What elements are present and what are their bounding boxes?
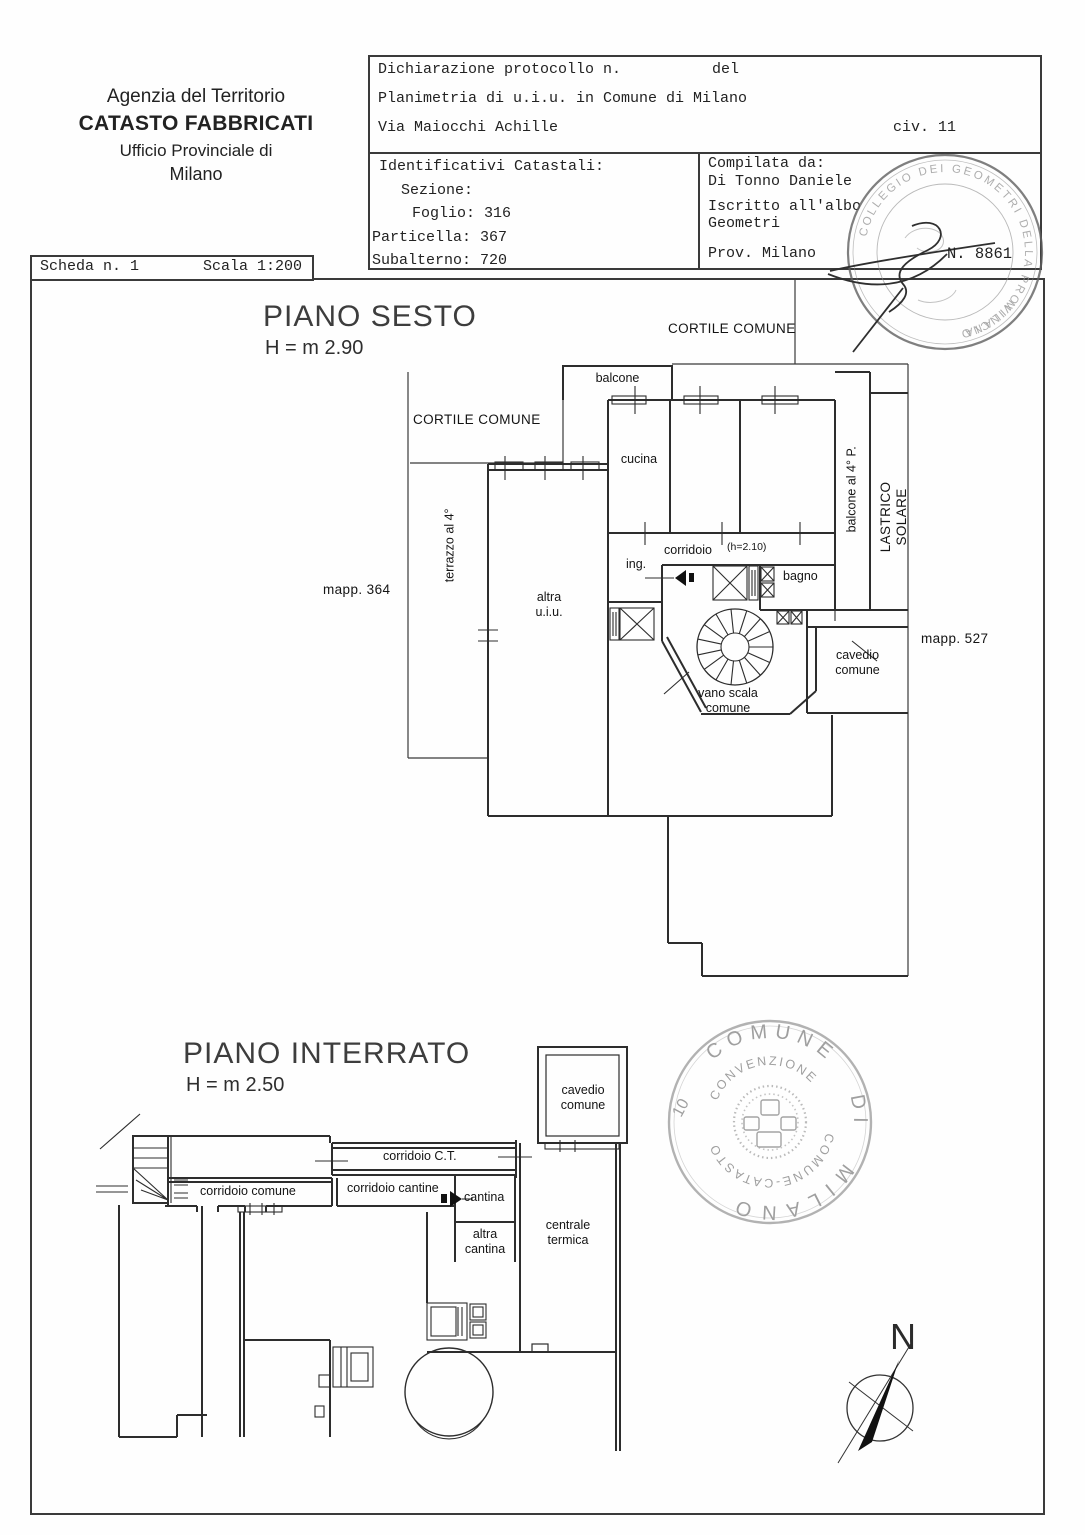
room-label-cavedio-interrato: cavedio comune — [548, 1083, 618, 1113]
scala-value: Scala 1:200 — [203, 258, 302, 275]
map-parcel-364: mapp. 364 — [323, 582, 390, 598]
room-label-corridoio-height: (h=2.10) — [727, 541, 766, 553]
room-label-cantina: cantina — [464, 1190, 504, 1205]
room-label-corridoio-comune: corridoio comune — [200, 1184, 296, 1199]
svg-text:DI: DI — [846, 1093, 872, 1130]
svg-text:MILANO: MILANO — [724, 1160, 857, 1224]
interrato-entry-arrow — [441, 1191, 462, 1207]
comune-stamp-inner-top: CONVENZIONE — [707, 1054, 820, 1102]
room-label-lastrico-solare: LASTRICO SOLARE — [878, 452, 910, 582]
map-parcel-527: mapp. 527 — [921, 631, 988, 647]
cadastral-document-page: Agenzia del Territorio CATASTO FABBRICAT… — [0, 0, 1085, 1535]
room-label-ing: ing. — [626, 557, 646, 572]
room-label-cortile-comune-left: CORTILE COMUNE — [413, 412, 541, 428]
svg-text:CONVENZIONE: CONVENZIONE — [707, 1054, 820, 1102]
sesto-entry-arrow — [675, 570, 694, 586]
room-label-centrale-termica: centrale termica — [532, 1218, 604, 1248]
room-label-terrazzo: terrazzo al 4° — [443, 480, 458, 610]
room-label-vano-scala: vano scala comune — [672, 686, 784, 716]
comune-stamp-word3: MILANO — [724, 1160, 857, 1224]
room-label-altra-uiu: altra u.i.u. — [518, 590, 580, 620]
room-label-balcone-4p: balcone al 4° P. — [845, 434, 860, 544]
comune-stamp: COMUNE DI MILANO CONVENZIONE COMUNE-CATA… — [669, 1020, 871, 1223]
room-label-cucina: cucina — [608, 452, 670, 467]
comune-stamp-inner-bottom: COMUNE-CATASTO — [706, 1132, 836, 1190]
room-label-cavedio-sesto: cavedio comune — [815, 648, 900, 678]
room-label-altra-cantina: altra cantina — [451, 1227, 519, 1257]
comune-stamp-code: 10 — [670, 1096, 693, 1120]
comune-stamp-word2: DI — [846, 1093, 872, 1130]
room-label-corridoio-cantine: corridoio cantine — [347, 1181, 439, 1196]
compass-north-label: N — [890, 1316, 916, 1358]
comune-stamp-emblem — [734, 1086, 806, 1158]
albo-stamp: COLLEGIO DEI GEOMETRI DELLA PROVINCIA MI… — [828, 155, 1042, 352]
svg-text:COMUNE-CATASTO: COMUNE-CATASTO — [706, 1132, 836, 1190]
room-label-corridoio-ct: corridoio C.T. — [383, 1149, 457, 1164]
scheda-number: Scheda n. 1 — [40, 258, 139, 275]
floor-plan-linework: COLLEGIO DEI GEOMETRI DELLA PROVINCIA MI… — [0, 0, 1085, 1535]
room-label-balcone: balcone — [563, 371, 672, 386]
north-compass — [838, 1342, 913, 1463]
room-label-bagno: bagno — [783, 569, 818, 584]
albo-stamp-number: N. 8861 — [947, 245, 1012, 263]
interrato-symbols — [96, 1114, 619, 1439]
room-label-corridoio: corridoio — [664, 543, 712, 558]
room-label-cortile-comune-top: CORTILE COMUNE — [668, 321, 796, 337]
